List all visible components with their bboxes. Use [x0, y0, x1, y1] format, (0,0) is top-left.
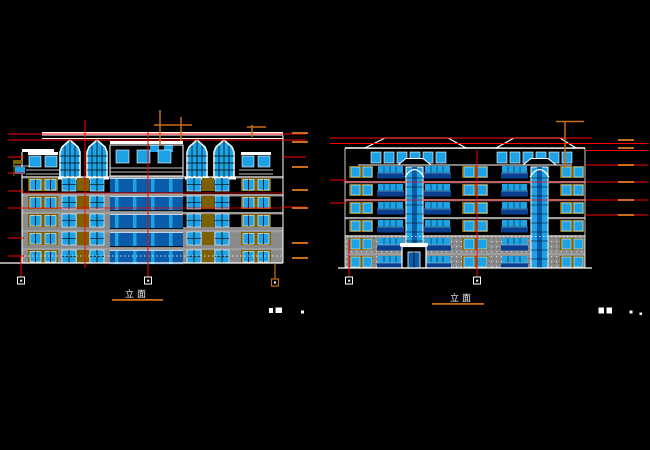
floor-slab: [345, 217, 585, 219]
window: [384, 152, 394, 163]
window-band: [502, 238, 527, 245]
mullion-strip: [133, 179, 137, 192]
lintel: [28, 152, 58, 155]
balcony-glass: [377, 173, 404, 179]
window-band: [502, 220, 527, 227]
window: [464, 257, 474, 267]
window: [363, 239, 372, 249]
window-band: [502, 202, 527, 209]
parapet: [110, 141, 183, 144]
window: [562, 221, 571, 231]
drawing-caption: 立面: [125, 288, 149, 300]
window: [574, 239, 583, 249]
window: [464, 239, 474, 249]
annotation-mark: [301, 311, 304, 314]
mullion-strip: [133, 233, 137, 246]
balcony-glass: [424, 173, 451, 179]
grid-bubble-label: [274, 282, 276, 284]
window: [464, 203, 474, 213]
window: [363, 185, 372, 195]
window: [351, 257, 360, 267]
window: [497, 152, 507, 163]
window: [562, 185, 571, 195]
window: [477, 203, 487, 213]
annotation-mark: [640, 313, 643, 316]
balcony-glass: [424, 209, 451, 215]
window: [242, 156, 254, 167]
window: [371, 152, 381, 163]
window: [45, 156, 57, 167]
balcony-glass: [501, 173, 528, 179]
window: [351, 167, 360, 177]
window-band: [425, 202, 450, 209]
annotation-mark: [607, 308, 613, 314]
window: [574, 167, 583, 177]
window: [436, 152, 446, 163]
window: [510, 152, 520, 163]
spandrel-panel: [77, 178, 89, 191]
annotation-mark: [630, 311, 633, 314]
grid-bubble-label: [147, 280, 149, 282]
window-band: [502, 166, 527, 173]
window: [477, 221, 487, 231]
window: [258, 156, 270, 167]
spandrel-panel: [202, 250, 214, 263]
balcony-glass: [377, 245, 404, 251]
window: [562, 167, 571, 177]
mullion-strip: [169, 179, 173, 192]
window: [477, 257, 487, 267]
window: [29, 156, 41, 167]
window: [351, 185, 360, 195]
window: [562, 203, 571, 213]
window-band: [378, 184, 403, 191]
window: [562, 239, 571, 249]
mullion-strip: [133, 251, 137, 264]
balcony-glass: [424, 191, 451, 197]
spandrel-panel: [202, 232, 214, 245]
mullion-strip: [151, 215, 155, 228]
balcony-glass: [424, 227, 451, 233]
window-band: [378, 256, 403, 263]
window-band: [425, 238, 450, 245]
grid-bubble-label: [20, 280, 22, 282]
caption-underline: [432, 303, 484, 305]
window: [574, 185, 583, 195]
spandrel-panel: [77, 232, 89, 245]
mullion-strip: [169, 251, 173, 264]
window-band: [502, 184, 527, 191]
window-band: [502, 256, 527, 263]
spandrel-panel: [202, 196, 214, 209]
annotation-mark: [599, 308, 605, 314]
balcony-glass: [501, 209, 528, 215]
balcony-glass: [424, 245, 451, 251]
balcony-glass: [377, 227, 404, 233]
window-band: [378, 166, 403, 173]
window: [562, 152, 572, 163]
side-cornice: [22, 149, 54, 152]
grid-bubble-label: [348, 280, 350, 282]
balcony-glass: [501, 191, 528, 197]
window-band: [378, 238, 403, 245]
window: [464, 185, 474, 195]
window: [363, 221, 372, 231]
window: [363, 203, 372, 213]
floor-slab: [345, 253, 585, 255]
window: [351, 221, 360, 231]
window-band: [425, 220, 450, 227]
balcony-glass: [501, 227, 528, 233]
window-band: [425, 256, 450, 263]
spandrel-panel: [202, 178, 214, 191]
annotation-mark: [276, 308, 283, 314]
balcony-glass: [501, 245, 528, 251]
mullion-strip: [169, 233, 173, 246]
mullion-strip: [169, 215, 173, 228]
window: [477, 239, 487, 249]
window: [363, 167, 372, 177]
cad-viewport: 立面立面: [0, 0, 650, 450]
window-band: [378, 220, 403, 227]
spandrel-panel: [202, 214, 214, 227]
mullion-strip: [133, 215, 137, 228]
grid-bubble-label: [476, 280, 478, 282]
window: [158, 150, 171, 163]
spandrel-panel: [77, 196, 89, 209]
mullion-strip: [151, 179, 155, 192]
balcony-glass: [377, 209, 404, 215]
mullion-strip: [151, 251, 155, 264]
window: [464, 167, 474, 177]
mullion-strip: [115, 215, 119, 228]
window-band: [378, 202, 403, 209]
window: [351, 203, 360, 213]
spandrel-panel: [77, 214, 89, 227]
spandrel-panel: [77, 250, 89, 263]
mullion-strip: [115, 233, 119, 246]
drawing-caption: 立面: [450, 292, 474, 304]
cad-canvas[interactable]: 立面立面: [0, 0, 650, 450]
window: [574, 257, 583, 267]
window-band: [425, 184, 450, 191]
window: [562, 257, 571, 267]
window: [477, 167, 487, 177]
window-band: [425, 166, 450, 173]
window: [363, 257, 372, 267]
window: [351, 239, 360, 249]
mullion-strip: [151, 233, 155, 246]
window: [477, 185, 487, 195]
annotation-mark: [269, 308, 273, 313]
attic-window: [150, 145, 159, 152]
window: [574, 221, 583, 231]
window: [574, 203, 583, 213]
lintel: [241, 152, 271, 155]
mullion-strip: [115, 251, 119, 264]
mullion-strip: [115, 179, 119, 192]
window: [116, 150, 129, 163]
window: [464, 221, 474, 231]
floor-slab: [345, 235, 585, 237]
balcony-glass: [377, 191, 404, 197]
caption-underline: [112, 299, 163, 301]
